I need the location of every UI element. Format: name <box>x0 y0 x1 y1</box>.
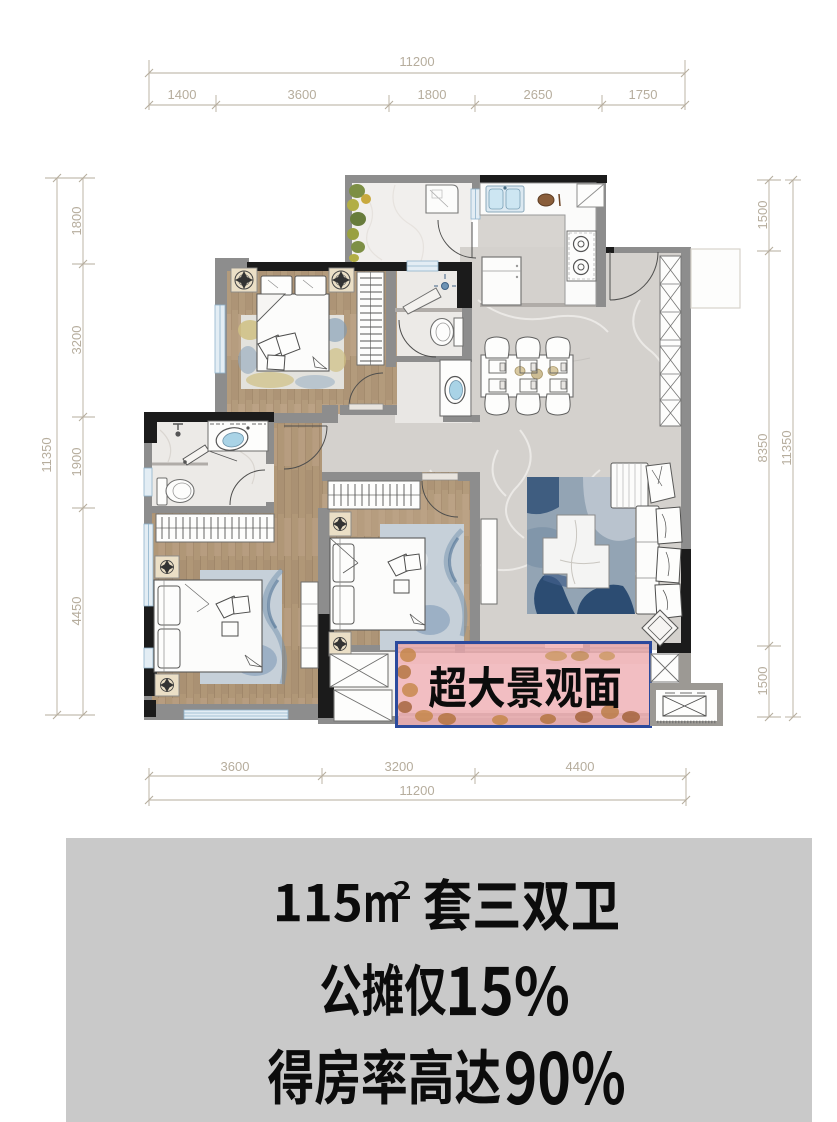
svg-text:1500: 1500 <box>755 667 770 696</box>
svg-text:1900: 1900 <box>69 448 84 477</box>
svg-text:3200: 3200 <box>69 326 84 355</box>
svg-text:1800: 1800 <box>418 87 447 102</box>
svg-text:4400: 4400 <box>566 759 595 774</box>
svg-text:3200: 3200 <box>385 759 414 774</box>
svg-text:1750: 1750 <box>629 87 658 102</box>
svg-text:11350: 11350 <box>779 430 794 465</box>
svg-text:3600: 3600 <box>288 87 317 102</box>
svg-text:1400: 1400 <box>168 87 197 102</box>
svg-text:2650: 2650 <box>524 87 553 102</box>
svg-text:11200: 11200 <box>399 783 434 798</box>
svg-text:4450: 4450 <box>69 597 84 626</box>
svg-text:8350: 8350 <box>755 434 770 463</box>
svg-text:3600: 3600 <box>221 759 250 774</box>
svg-text:1800: 1800 <box>69 207 84 236</box>
svg-text:11200: 11200 <box>399 54 434 69</box>
svg-text:11350: 11350 <box>39 437 54 472</box>
svg-text:1500: 1500 <box>755 201 770 230</box>
